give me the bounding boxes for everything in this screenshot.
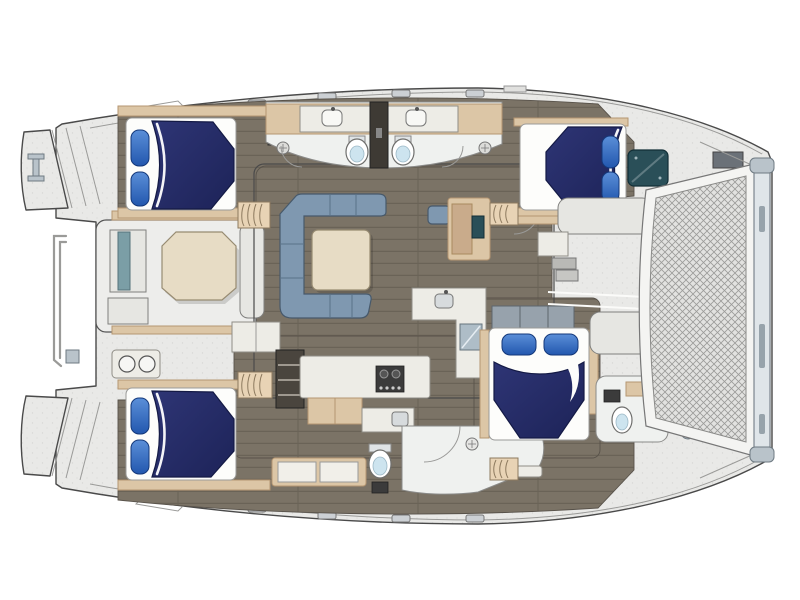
beam-cap [750,447,774,462]
forward-table [538,232,568,256]
faucet-icon [331,107,335,111]
beam-cap [750,158,774,173]
stove [376,366,404,392]
anchor-locker-hatch [628,150,668,186]
beam-fitting [759,324,765,368]
companionway-steps [490,458,518,480]
nav-screen-icon [472,216,484,238]
toilet-port-1 [346,136,368,165]
hatch-icon [466,515,484,522]
pillow [131,398,149,434]
grill-burner-icon [139,356,155,372]
catamaran-floorplan-page [0,0,800,600]
cockpit-side-bench [108,298,148,324]
cockpit-dining-table [162,232,236,300]
pillow [602,136,619,168]
starboard-aft-berth-locker [272,458,366,486]
pillow [502,334,536,355]
faucet-icon [444,290,448,294]
toilet-port-2 [392,136,414,165]
cockpit-grill [112,350,160,378]
forward-bench-port [558,198,652,234]
sink-bowl-icon [322,110,342,126]
shower-bench [516,466,542,477]
head-fixture [604,390,620,402]
companionway-steps [490,203,518,225]
stove-knob-icon [385,386,388,389]
trampoline-mesh [650,176,746,442]
cockpit-forward-bench [240,224,264,318]
nav-seat [428,206,450,224]
pillow [131,130,149,166]
galley-sink-icon [392,412,408,426]
hatch-icon [466,90,484,97]
grill-burner-icon [119,356,135,372]
stove-burner-icon [380,370,388,378]
bulkhead-trim [118,106,270,116]
faucet-icon [415,107,419,111]
hatch-bolt [635,157,638,160]
stove-knob-icon [379,386,382,389]
bulkhead-trim [480,330,489,438]
stove-knob-icon [397,386,400,389]
davit-fitting [66,350,79,363]
locker-panel [320,462,358,482]
pillow [544,334,578,355]
bow-trampoline [639,142,774,478]
stove-knob-icon [391,386,394,389]
forward-step [552,258,576,269]
pillow [131,172,149,206]
locker-panel [278,462,316,482]
companionway-steps [238,202,270,228]
shower-drain-icon [466,438,478,450]
nav-desk-top [452,204,472,254]
forward-crossbeam [750,158,774,462]
mast-step [504,86,526,92]
partition-handle [376,128,382,138]
companionway-steps [238,372,272,398]
toilet-starboard-aft [369,444,391,478]
pillow [131,440,149,474]
shower-drain-icon [277,142,289,154]
sink-bowl-icon [406,110,426,126]
hatch-icon [392,515,410,522]
beam-fitting [759,414,765,434]
hatch-bolt [659,177,662,180]
stove-burner-icon [392,370,400,378]
helm-seat-cushion [118,232,130,290]
forward-step [556,270,578,281]
galley-counter [300,356,430,398]
toilet-starboard-forward [612,407,632,433]
head-bench [492,306,574,330]
bathroom-fixture [372,482,388,493]
bulkhead-trim [118,480,270,490]
island-sink-icon [435,294,453,308]
davit-rail-inner [60,242,66,358]
shower-drain-icon [479,142,491,154]
hatch-icon [392,90,410,97]
coffee-table [312,230,370,290]
beam-fitting [759,206,765,232]
floorplan-canvas [0,0,800,600]
